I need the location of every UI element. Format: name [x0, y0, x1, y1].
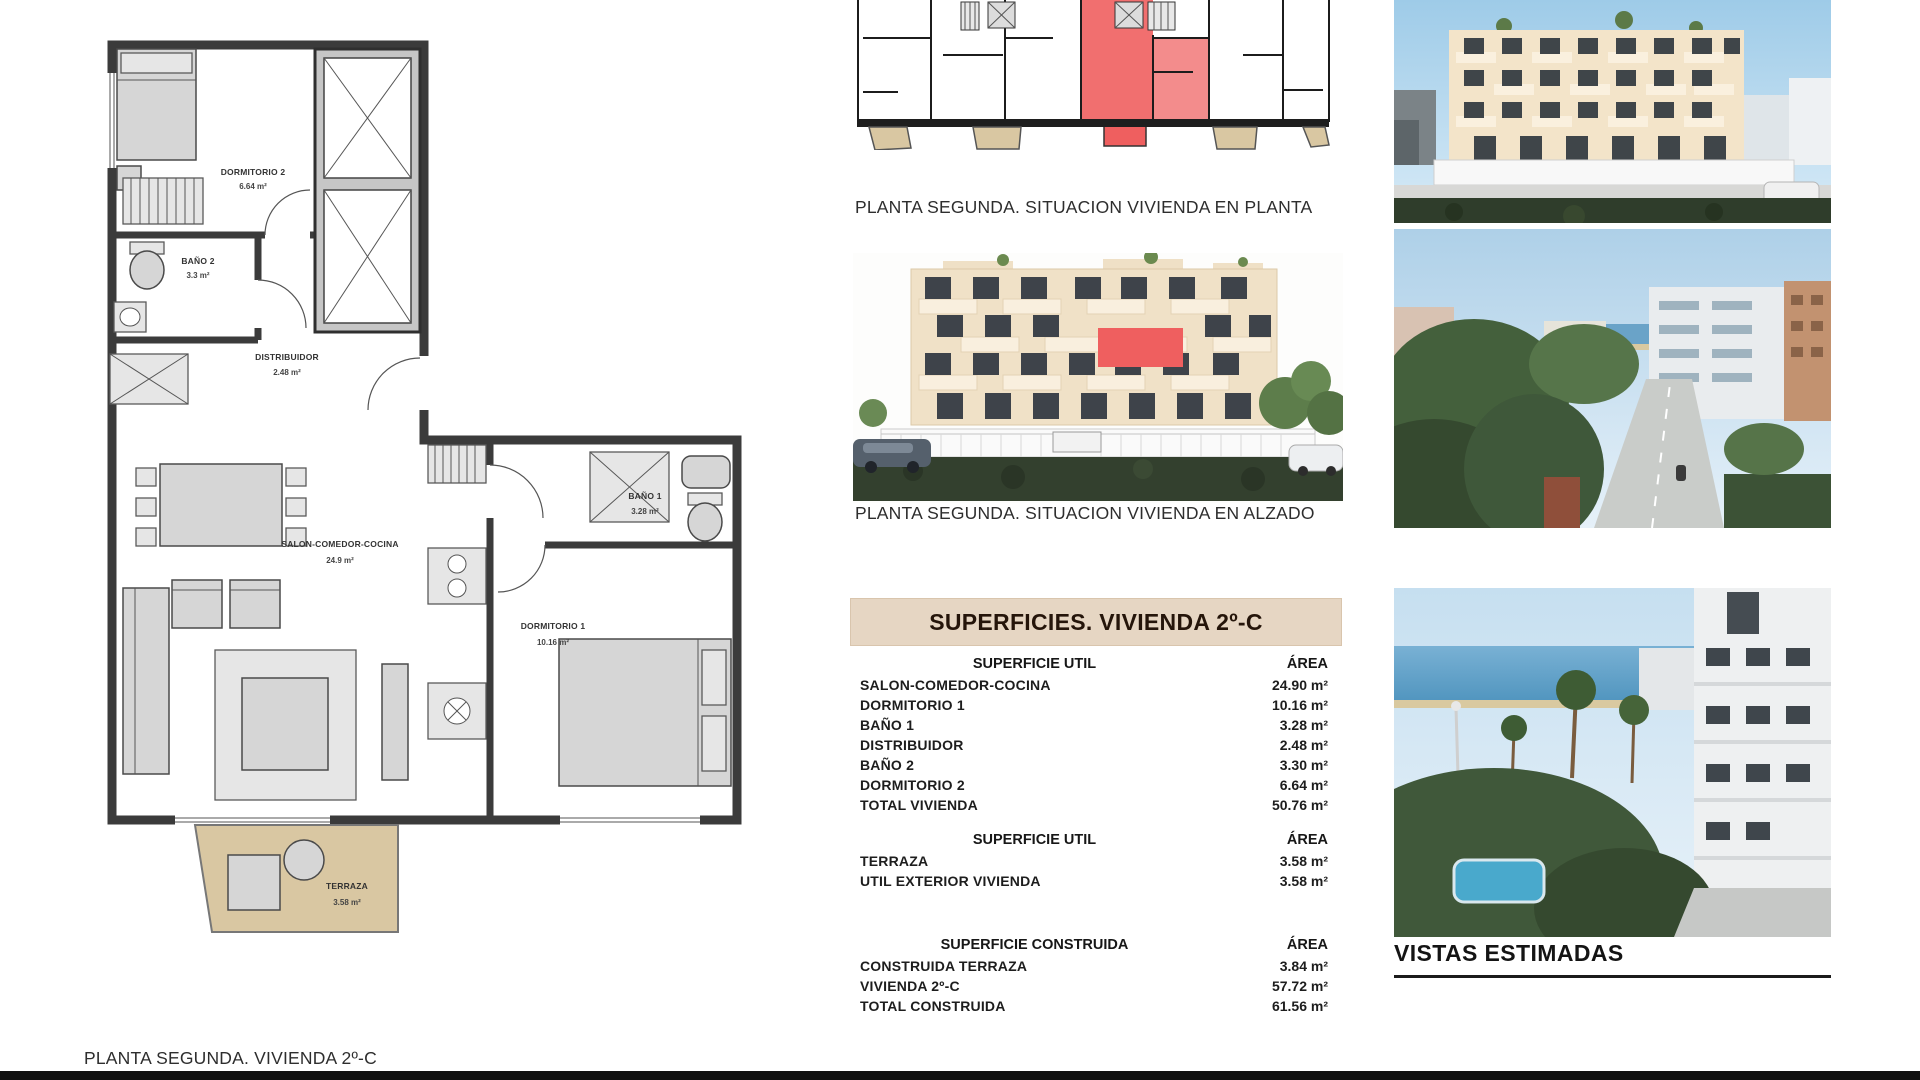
room-label-dormitorio2: DORMITORIO 2 [221, 167, 286, 177]
elevation-render [853, 253, 1343, 503]
room-area-dormitorio1: 10.16 m² [537, 638, 569, 647]
fence [881, 429, 1315, 457]
room-label-distribuidor: DISTRIBUIDOR [255, 352, 319, 362]
kitchen [428, 445, 486, 739]
situation-plan-drawing [853, 0, 1335, 150]
stair-core [315, 49, 420, 332]
situation-plan [853, 0, 1335, 150]
apartment-floor-plan: DORMITORIO 2 6.64 m² BAÑO 2 3.3 m² DISTR… [90, 28, 750, 938]
room-area-dormitorio2: 6.64 m² [239, 182, 267, 191]
room-area-bano2: 3.3 m² [186, 271, 209, 280]
section-header: SUPERFICIE UTIL ÁREA [850, 656, 1342, 677]
table-row: UTIL EXTERIOR VIVIENDA3.58 m² [850, 873, 1342, 893]
table-row: VIVIENDA 2º-C57.72 m² [850, 978, 1342, 998]
room-label-dormitorio1: DORMITORIO 1 [521, 621, 586, 631]
bottom-bar [0, 1071, 1920, 1080]
vistas-title: VISTAS ESTIMADAS [1394, 940, 1624, 967]
table-row: BAÑO 13.28 m² [850, 717, 1342, 737]
room-label-bano1: BAÑO 1 [628, 491, 661, 501]
dormitorio1-bed [559, 639, 731, 786]
highlighted-unit-elevation [1098, 328, 1183, 367]
surfaces-section-util-exterior: SUPERFICIE UTIL ÁREA TERRAZA3.58 m² UTIL… [850, 832, 1342, 893]
situation-plan-caption: PLANTA SEGUNDA. SITUACION VIVIENDA EN PL… [855, 197, 1312, 218]
table-row: SALON-COMEDOR-COCINA24.90 m² [850, 677, 1342, 697]
surfaces-table-title: SUPERFICIES. VIVIENDA 2º-C [850, 598, 1342, 646]
bano2-fixtures [114, 242, 164, 332]
room-area-terraza: 3.58 m² [333, 898, 361, 907]
photo-building-front [1394, 0, 1831, 223]
stair-hatches [961, 2, 1175, 30]
entry-door-gap [419, 356, 429, 410]
section-header-area: ÁREA [1219, 656, 1342, 672]
balconies [919, 299, 1271, 390]
room-label-terraza: TERRAZA [326, 881, 368, 891]
section-header: SUPERFICIE UTIL ÁREA [850, 832, 1342, 853]
room-area-distribuidor: 2.48 m² [273, 368, 301, 377]
room-area-salon: 24.9 m² [326, 556, 354, 565]
apartment-floor-plan-drawing [90, 28, 750, 938]
section-header: SUPERFICIE CONSTRUIDA ÁREA [850, 937, 1342, 958]
table-row: CONSTRUIDA TERRAZA3.84 m² [850, 958, 1342, 978]
surfaces-section-util: SUPERFICIE UTIL ÁREA SALON-COMEDOR-COCIN… [850, 656, 1342, 817]
table-row: TERRAZA3.58 m² [850, 853, 1342, 873]
table-row: BAÑO 23.30 m² [850, 757, 1342, 777]
shower-box [110, 354, 188, 404]
room-label-bano2: BAÑO 2 [181, 256, 214, 266]
photo-sea-view [1394, 588, 1831, 937]
section-header-label: SUPERFICIE UTIL [850, 656, 1219, 672]
wardrobe [123, 178, 203, 224]
car-right [1289, 445, 1343, 476]
table-row: DORMITORIO 110.16 m² [850, 697, 1342, 717]
surfaces-section-construida: SUPERFICIE CONSTRUIDA ÁREA CONSTRUIDA TE… [850, 937, 1342, 1018]
surfaces-table: SUPERFICIES. VIVIENDA 2º-C SUPERFICIE UT… [850, 598, 1342, 1018]
vistas-rule [1394, 975, 1831, 978]
floor-plan-caption: PLANTA SEGUNDA. VIVIENDA 2º-C [84, 1048, 377, 1069]
plan-terraces [869, 127, 1329, 150]
elevation-caption: PLANTA SEGUNDA. SITUACION VIVIENDA EN AL… [855, 503, 1315, 524]
table-row: DORMITORIO 26.64 m² [850, 777, 1342, 797]
table-row: TOTAL CONSTRUIDA61.56 m² [850, 998, 1342, 1018]
armchairs [172, 580, 280, 628]
dining-table [136, 464, 306, 546]
bottom-wall [857, 119, 1329, 127]
table-row: DISTRIBUIDOR2.48 m² [850, 737, 1342, 757]
room-label-salon: SALON-COMEDOR-COCINA [281, 539, 398, 549]
dormitorio2-bed [117, 49, 196, 190]
terrace [195, 825, 398, 932]
room-area-bano1: 3.28 m² [631, 507, 659, 516]
table-row: TOTAL VIVIENDA50.76 m² [850, 797, 1342, 817]
elevation-drawing [853, 253, 1343, 503]
photo-street-view [1394, 229, 1831, 528]
